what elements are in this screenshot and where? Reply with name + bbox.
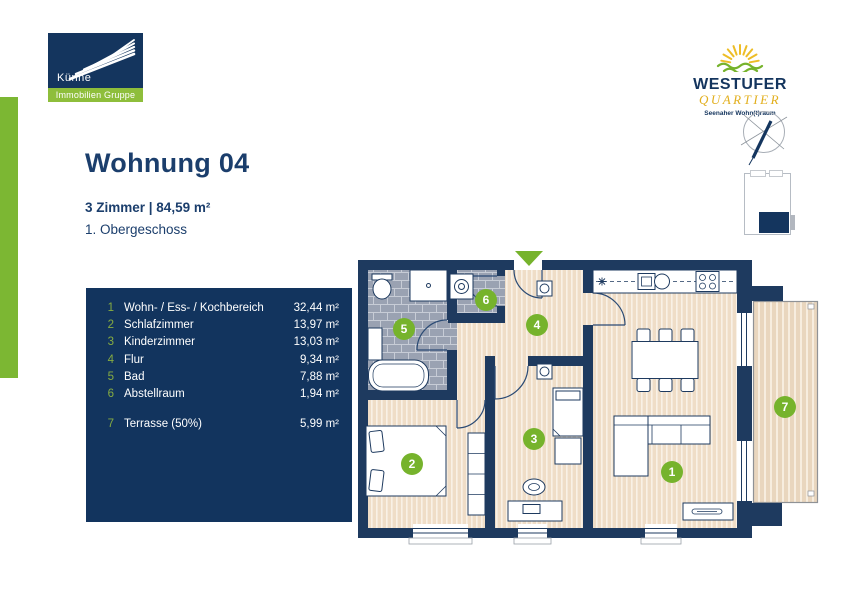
legend-name: Flur: [124, 354, 300, 366]
legend-row-7: 7 Terrasse (50%) 5,99 m²: [98, 418, 339, 435]
dining-chair: [659, 329, 672, 342]
dining-table: [632, 342, 698, 379]
building-locator-map: [744, 173, 791, 235]
legend-num: 1: [98, 302, 114, 314]
washing-machine: [450, 274, 473, 299]
locator-roof-left: [750, 170, 766, 177]
compass-icon: [738, 108, 790, 166]
legend-row-2: 2 Schlafzimmer 13,97 m²: [98, 319, 339, 336]
bathtub: [369, 360, 429, 391]
plan-room-badge-3: 3: [523, 428, 545, 450]
sun-waves-icon: [688, 30, 792, 72]
page-title: Wohnung 04: [85, 148, 250, 179]
kuenne-logo: Künne Immobilien Gruppe: [48, 33, 143, 102]
floorplan-svg: [356, 248, 826, 553]
legend-num: 5: [98, 371, 114, 383]
dining-chair: [659, 379, 672, 392]
plan-room-badge-5: 5: [393, 318, 415, 340]
legend-name: Kinderzimmer: [124, 336, 294, 348]
apartment-details: 3 Zimmer | 84,59 m²: [85, 200, 210, 215]
legend-num: 3: [98, 336, 114, 348]
legend-area: 7,88 m²: [300, 371, 339, 383]
westufer-logo: WESTUFER QUARTIER Seenaher Wohn(t)raum: [688, 30, 792, 117]
laptop: [523, 505, 540, 514]
bath-sink: [368, 328, 382, 360]
kuenne-tagline: Immobilien Gruppe: [48, 88, 143, 102]
legend-row-3: 3 Kinderzimmer 13,03 m²: [98, 336, 339, 353]
legend-name: Bad: [124, 371, 300, 383]
legend-name: Wohn- / Ess- / Kochbereich: [124, 302, 294, 314]
brochure-page: Künne Immobilien Gruppe WESTUFER QUA: [0, 0, 842, 595]
plan-room-badge-7: 7: [774, 396, 796, 418]
plan-room-badge-1: 1: [661, 461, 683, 483]
pillow: [556, 391, 580, 400]
left-accent-bar: [0, 97, 18, 378]
legend-area: 32,44 m²: [294, 302, 339, 314]
room-legend-panel: 1 Wohn- / Ess- / Kochbereich 32,44 m² 2 …: [86, 288, 352, 522]
plan-room-badge-2: 2: [401, 453, 423, 475]
ceiling-fixture: [537, 281, 552, 296]
dining-chair: [637, 379, 650, 392]
dining-chair: [637, 329, 650, 342]
legend-area: 5,99 m²: [300, 418, 339, 430]
westufer-name-line1: WESTUFER: [688, 77, 792, 93]
locator-roof-right: [769, 170, 783, 177]
legend-row-5: 5 Bad 7,88 m²: [98, 371, 339, 388]
dining-chair: [681, 379, 694, 392]
legend-area: 13,97 m²: [294, 319, 339, 331]
plan-room-badge-4: 4: [526, 314, 548, 336]
kitchen-sink-symbol: [598, 278, 606, 286]
legend-num: 4: [98, 354, 114, 366]
ceiling-fixture: [537, 364, 552, 379]
desk-chair: [523, 479, 545, 495]
plan-room-badge-6: 6: [475, 289, 497, 311]
dining-chair: [681, 329, 694, 342]
apartment-floor: 1. Obergeschoss: [85, 222, 187, 237]
legend-area: 1,94 m²: [300, 388, 339, 400]
legend-row-6: 6 Abstellraum 1,94 m²: [98, 388, 339, 405]
legend-row-4: 4 Flur 9,34 m²: [98, 354, 339, 371]
shower-drain: [427, 284, 431, 288]
pillow: [369, 430, 384, 452]
pillow: [369, 469, 384, 491]
kuenne-logo-block: Künne: [48, 33, 143, 88]
legend-area: 13,03 m²: [294, 336, 339, 348]
toilet-bowl: [373, 279, 391, 299]
legend-name: Schlafzimmer: [124, 319, 294, 331]
legend-num: 2: [98, 319, 114, 331]
locator-balcony-tab: [790, 215, 795, 230]
legend-name: Terrasse (50%): [124, 418, 300, 430]
westufer-name-line2: QUARTIER: [688, 93, 792, 108]
round-sink: [655, 274, 670, 289]
legend-num: 7: [98, 418, 114, 430]
legend-row-1: 1 Wohn- / Ess- / Kochbereich 32,44 m²: [98, 302, 339, 319]
legend-area: 9,34 m²: [300, 354, 339, 366]
stove: [696, 272, 719, 292]
entrance-marker: [515, 251, 543, 266]
legend-num: 6: [98, 388, 114, 400]
chest: [555, 438, 581, 464]
oven: [638, 274, 655, 290]
kuenne-name: Künne: [57, 72, 91, 84]
legend-name: Abstellraum: [124, 388, 300, 400]
locator-unit-highlight: [759, 212, 789, 233]
